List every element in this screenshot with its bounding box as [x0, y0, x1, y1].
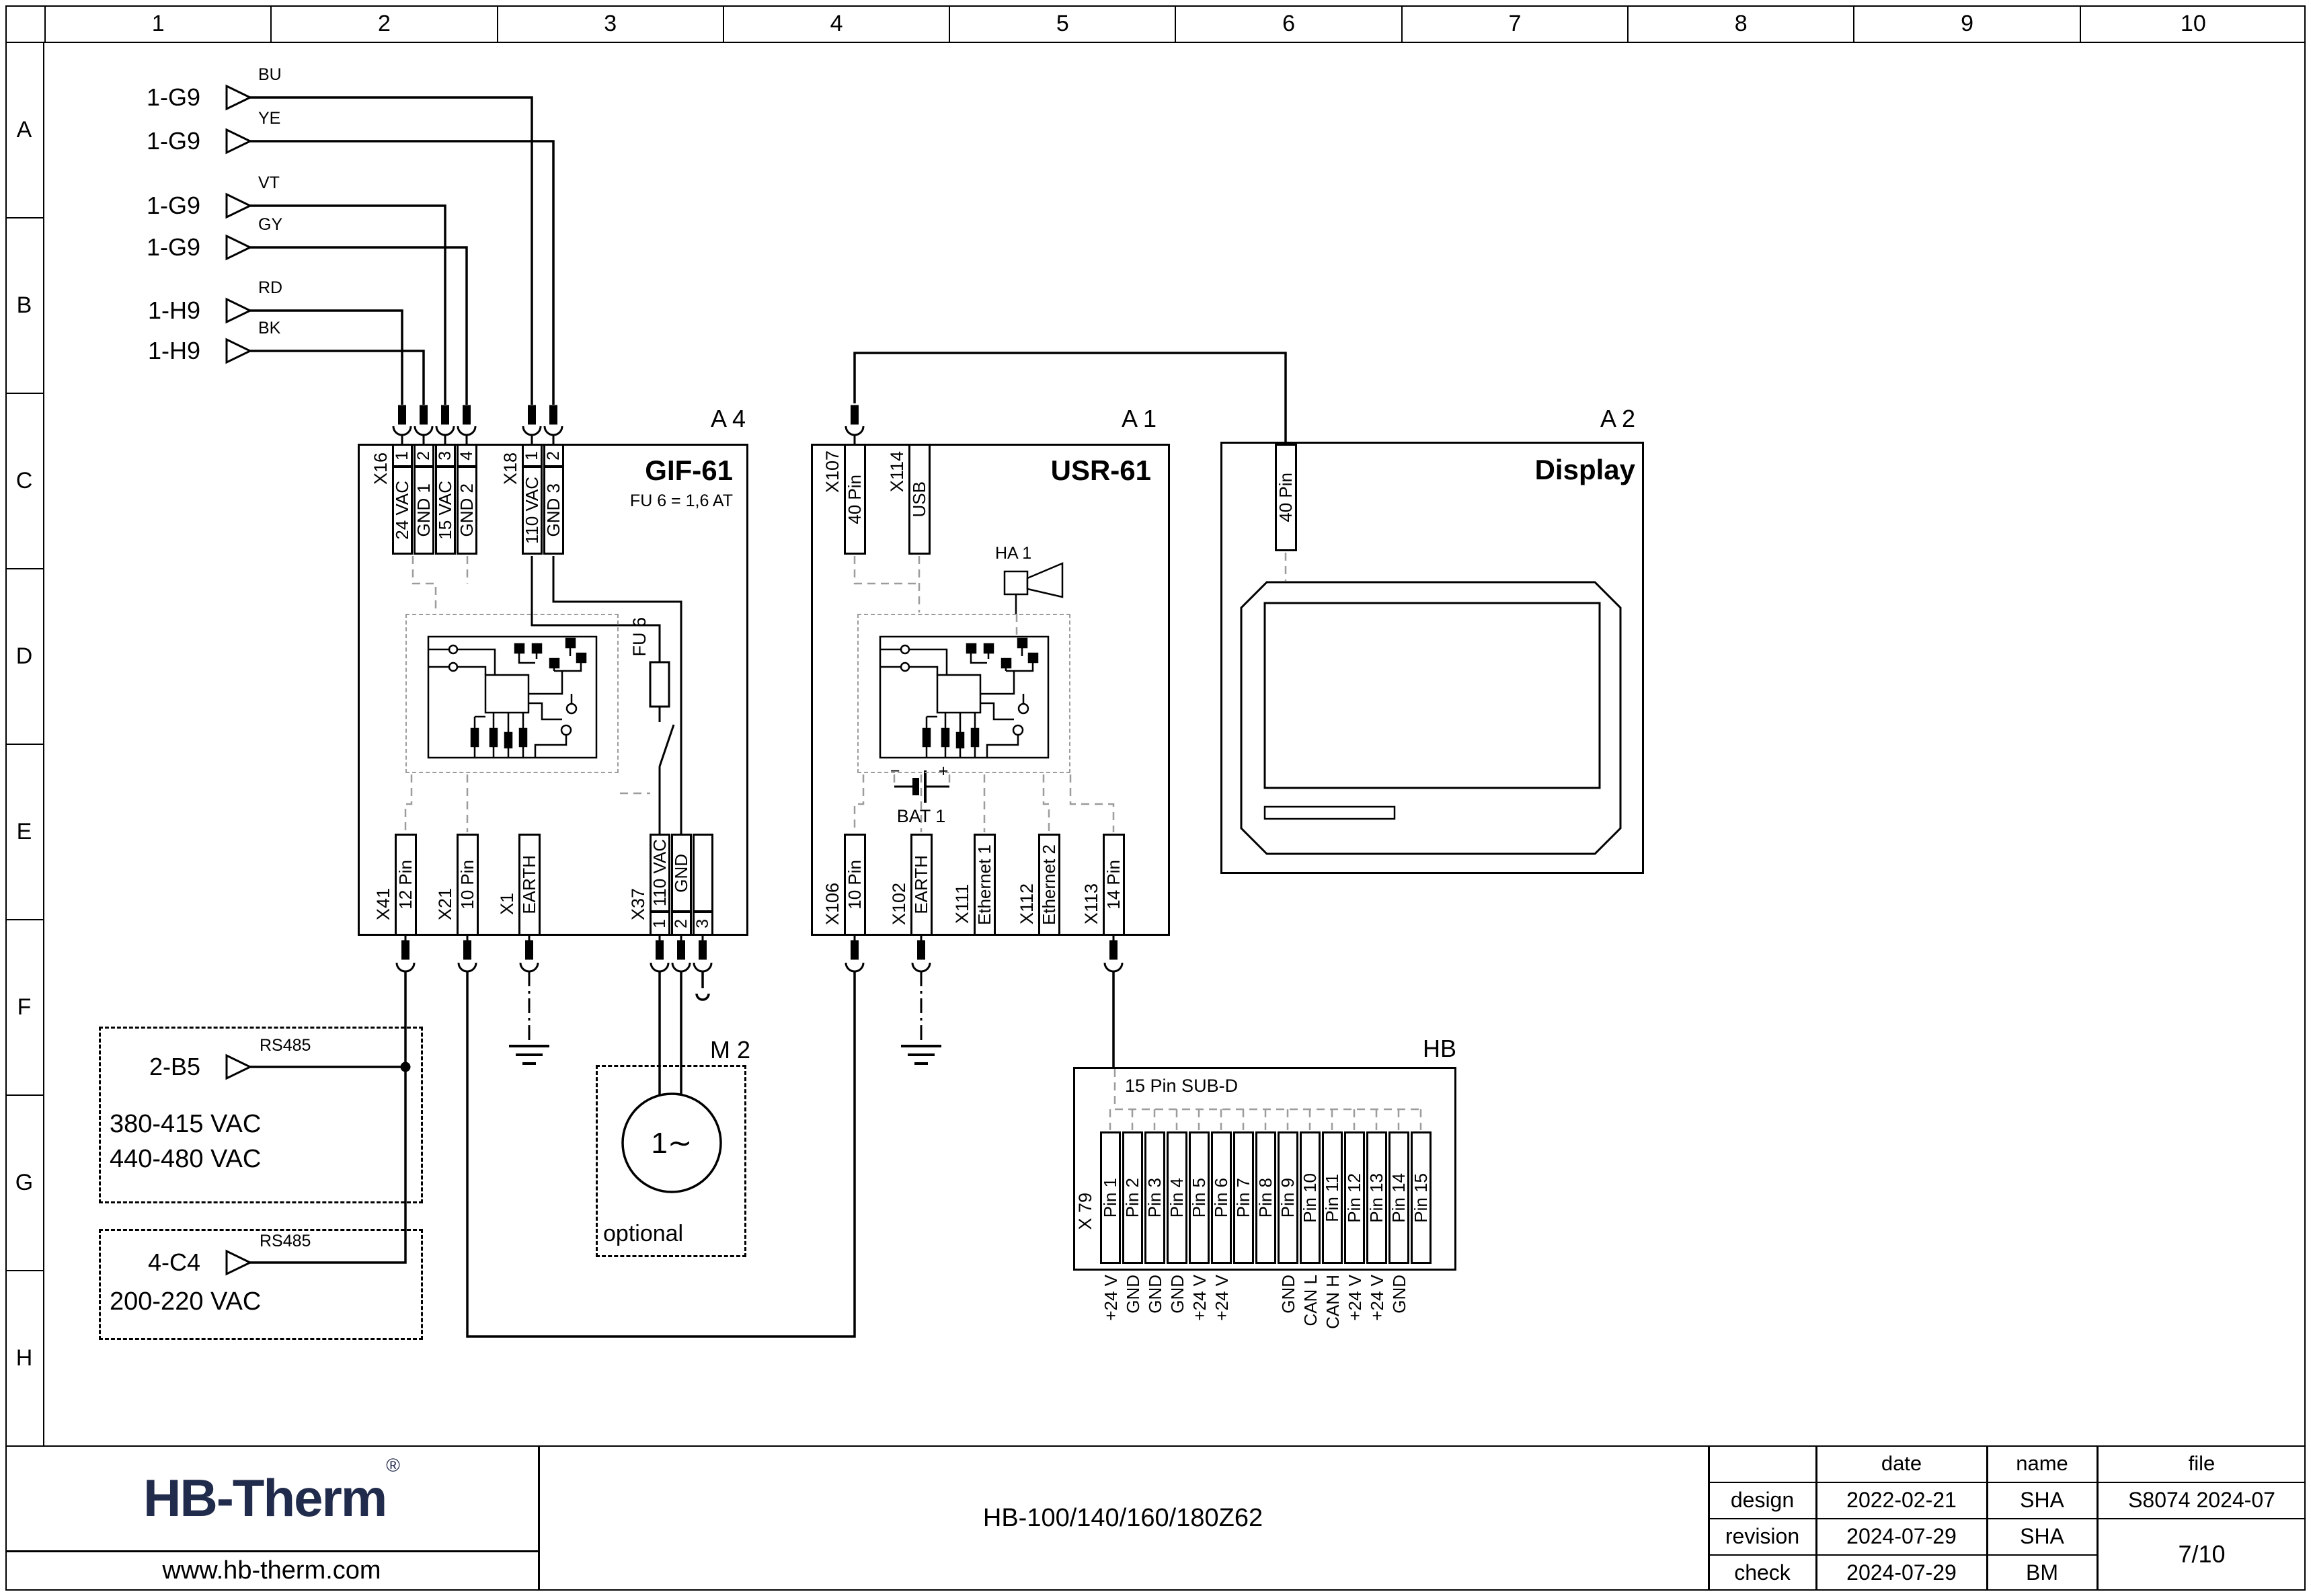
x18-pin-label: 110 VAC [522, 466, 543, 555]
pin-function: GND [1389, 1275, 1409, 1416]
x16-pin-number: 4 [457, 444, 477, 467]
x102-pin-label: EARTH [910, 834, 933, 936]
motor-phase-label: 1∼ [638, 1124, 705, 1162]
col-label: 10 [2081, 5, 2306, 42]
pin-function [1411, 1275, 1432, 1416]
design-name: SHA [1988, 1482, 2097, 1518]
x18-pin-label: GND 3 [543, 466, 564, 555]
a1-ref: A 1 [1057, 405, 1157, 433]
x37-pin-label: 110 VAC [650, 834, 670, 912]
check-name: BM [1988, 1554, 2097, 1591]
x79-pin: Pin 15 [1411, 1131, 1432, 1264]
table-header-file: file [2098, 1445, 2306, 1482]
x16-pin-label: GND 2 [457, 466, 477, 555]
signal-ref: 1-H9 [113, 296, 200, 325]
fuse-label: FU 6 [629, 608, 650, 666]
row-label: D [5, 569, 43, 745]
subd-label: 15 Pin SUB-D [1125, 1074, 1286, 1097]
x37-pin-number: 1 [650, 911, 670, 936]
x79-pin: Pin 5 [1189, 1131, 1210, 1264]
row-header: A B C D E F G H [5, 43, 44, 1445]
wire-color-label: BU [258, 65, 332, 85]
a2-title: Display [1460, 454, 1635, 485]
pin-function: GND [1145, 1275, 1165, 1416]
schematic-page: 1 2 3 4 5 6 7 8 9 10 A B C D E F G H 1-G… [0, 0, 2311, 1596]
wire-color-label: VT [258, 173, 332, 193]
row-label: F [5, 920, 43, 1096]
signal-ref: 1-G9 [113, 83, 200, 112]
connector-x102-label: X102 [889, 874, 909, 934]
m2-ref: M 2 [710, 1037, 791, 1064]
signal-ref: 1-G9 [113, 127, 200, 155]
pin-function [1256, 1275, 1276, 1416]
voltage-range: 380-415 VAC [110, 1109, 331, 1139]
x107-pin-label: 40 Pin [844, 444, 866, 555]
wire-color-label: GY [258, 214, 332, 235]
page-number: 7/10 [2098, 1518, 2306, 1591]
company-website: www.hb-therm.com [5, 1550, 538, 1591]
connector-x37-label: X37 [628, 874, 648, 934]
wire-color-label: BK [258, 318, 332, 338]
col-label: 9 [1854, 5, 2080, 42]
connector-x113-label: X113 [1081, 874, 1101, 934]
x79-pin: Pin 13 [1366, 1131, 1387, 1264]
a2-ref: A 2 [1536, 405, 1635, 433]
col-label: 7 [1403, 5, 1629, 42]
x37-pin-label: GND [671, 834, 692, 912]
model-number: HB-100/140/160/180Z62 [538, 1445, 1708, 1591]
signal-ref: 1-H9 [113, 337, 200, 365]
a4-pcb-dashed-box [405, 614, 619, 773]
connector-x114-label: X114 [887, 445, 907, 499]
connector-x106-label: X106 [822, 874, 843, 934]
x79-pin: Pin 6 [1211, 1131, 1232, 1264]
registered-mark: ® [386, 1455, 400, 1476]
row-label: A [5, 43, 43, 218]
horn-label: HA 1 [995, 543, 1069, 563]
pin-function: GND [1167, 1275, 1187, 1416]
connector-x18-label: X18 [500, 445, 520, 492]
x41-pin-label: 12 Pin [395, 834, 417, 936]
m2-optional-label: optional [603, 1220, 724, 1247]
x37-pin-label [693, 834, 713, 912]
bus-label: RS485 [260, 1231, 354, 1251]
x18-pin-number: 1 [522, 444, 543, 467]
connector-x41-label: X41 [373, 874, 393, 934]
check-date: 2024-07-29 [1817, 1554, 1986, 1591]
x79-pin: Pin 8 [1255, 1131, 1276, 1264]
source-ref: 4-C4 [106, 1248, 200, 1277]
signal-ref: 1-G9 [113, 233, 200, 262]
col-label: 6 [1176, 5, 1402, 42]
row-label: E [5, 745, 43, 920]
row-label: G [5, 1096, 43, 1271]
a4-fuse-note: FU 6 = 1,6 AT [558, 491, 733, 511]
x16-pin-number: 2 [414, 444, 434, 467]
connector-x16-label: X16 [370, 445, 391, 492]
voltage-range: 440-480 VAC [110, 1144, 331, 1174]
row-label: B [5, 218, 43, 394]
design-date: 2022-02-21 [1817, 1482, 1986, 1518]
pin-function: CAN H [1323, 1275, 1343, 1416]
signal-ref: 1-G9 [113, 192, 200, 220]
a1-pcb-dashed-box [857, 614, 1070, 773]
x37-pin-number: 3 [693, 911, 713, 936]
row-revision-label: revision [1709, 1518, 1815, 1554]
x16-pin-label: 15 VAC [435, 466, 456, 555]
x106-pin-label: 10 Pin [844, 834, 866, 936]
col-label: 2 [272, 5, 498, 42]
row-design-label: design [1709, 1482, 1815, 1518]
a1-title: USR-61 [976, 454, 1151, 487]
col-label: 3 [498, 5, 724, 42]
x79-pin: Pin 9 [1278, 1131, 1298, 1264]
revision-name: SHA [1988, 1518, 2097, 1554]
pin-function: +24 V [1367, 1275, 1387, 1416]
x37-pin-number: 2 [671, 911, 692, 936]
row-label: C [5, 394, 43, 569]
x16-pin-label: GND 1 [414, 466, 434, 555]
revision-date: 2024-07-29 [1817, 1518, 1986, 1554]
connector-x1-label: X1 [497, 874, 517, 934]
x112-pin-label: Ethernet 2 [1038, 834, 1060, 936]
connector-x111-label: X111 [952, 874, 972, 934]
x16-pin-label: 24 VAC [392, 466, 413, 555]
pin-function: +24 V [1212, 1275, 1232, 1416]
pin-function: GND [1278, 1275, 1298, 1416]
x114-pin-label: USB [908, 444, 931, 555]
bus-label: RS485 [260, 1035, 354, 1055]
col-label: 5 [950, 5, 1176, 42]
connector-x112-label: X112 [1017, 874, 1037, 934]
x1-pin-label: EARTH [518, 834, 541, 936]
source-ref: 2-B5 [106, 1053, 200, 1081]
x79-pin: Pin 10 [1300, 1131, 1321, 1264]
col-label: 8 [1629, 5, 1854, 42]
x79-pin: Pin 3 [1144, 1131, 1165, 1264]
battery-label: BAT 1 [881, 805, 962, 827]
connector-x107-label: X107 [822, 445, 843, 499]
row-label: H [5, 1271, 43, 1445]
wire-color-label: RD [258, 278, 332, 298]
row-check-label: check [1709, 1554, 1815, 1591]
table-header-date: date [1817, 1445, 1986, 1482]
x16-pin-number: 3 [435, 444, 456, 467]
battery-minus: − [885, 761, 905, 781]
pin-function [1234, 1275, 1254, 1416]
battery-plus: + [933, 761, 953, 781]
table-header-name: name [1988, 1445, 2097, 1482]
company-logo: HB-Therm® [5, 1445, 538, 1550]
col-label: 4 [724, 5, 950, 42]
hb-ref: HB [1372, 1035, 1456, 1062]
connector-x21-label: X21 [435, 874, 455, 934]
wire-color-label: YE [258, 108, 332, 128]
column-header: 1 2 3 4 5 6 7 8 9 10 [5, 5, 2306, 43]
x111-pin-label: Ethernet 1 [974, 834, 996, 936]
connector-x79-label: X 79 [1075, 1159, 1095, 1264]
x16-pin-number: 1 [392, 444, 413, 467]
file-id: S8074 2024-07 [2098, 1482, 2306, 1518]
a4-ref: A 4 [646, 405, 746, 433]
x113-pin-label: 14 Pin [1103, 834, 1125, 936]
x79-pin: Pin 2 [1122, 1131, 1143, 1264]
x79-pin: Pin 4 [1167, 1131, 1187, 1264]
a4-title: GIF-61 [558, 454, 733, 487]
col-label: 1 [46, 5, 272, 42]
pin-function: +24 V [1101, 1275, 1121, 1416]
pin-function: +24 V [1189, 1275, 1210, 1416]
pin-function: GND [1123, 1275, 1143, 1416]
x79-pin: Pin 7 [1233, 1131, 1254, 1264]
pin-function: CAN L [1300, 1275, 1321, 1416]
x21-pin-label: 10 Pin [457, 834, 479, 936]
x18-pin-number: 2 [543, 444, 564, 467]
voltage-range: 200-220 VAC [110, 1287, 331, 1316]
x79-pin: Pin 11 [1322, 1131, 1343, 1264]
x79-pin: Pin 1 [1100, 1131, 1121, 1264]
x79-pin: Pin 12 [1344, 1131, 1365, 1264]
x79-pin: Pin 14 [1388, 1131, 1409, 1264]
a2-40pin-label: 40 Pin [1275, 444, 1297, 551]
pin-function: +24 V [1345, 1275, 1365, 1416]
